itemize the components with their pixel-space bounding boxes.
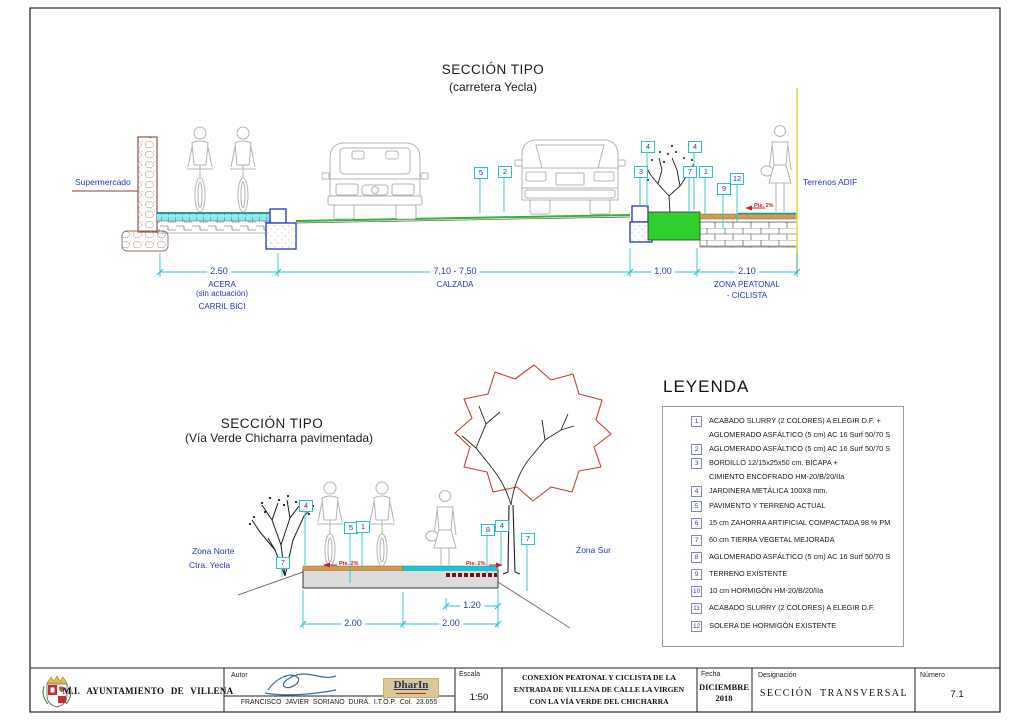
date-month: DICIEMBRE — [699, 682, 749, 692]
dim-acera-caption: (sin actuación) — [196, 289, 248, 298]
author-label: Autor — [231, 672, 248, 679]
marker-3: 3 — [634, 166, 648, 178]
bottom-section-title: SECCIÓN TIPO — [221, 416, 324, 431]
drawing-sheet: SECCIÓN TIPO (carretera Yecla) Supermerc… — [0, 0, 1024, 724]
legend-item: 3BORDILLO 12/15x25x50 cm. BICAPA +CIMIEN… — [691, 456, 844, 484]
marker-4: 4 — [299, 500, 313, 512]
via-verde-path — [303, 566, 498, 588]
legend-item: 615 cm ZAHORRA ARTIFICIAL COMPACTADA 98 … — [691, 516, 890, 534]
left-curb — [266, 209, 296, 249]
legend-item: 12SOLERA DE HORMIGÓN EXISTENTE — [691, 619, 836, 637]
legend-item-text: AGLOMERADO ASFÁLTICO (5 cm) AC 16 Surf 5… — [709, 442, 890, 456]
legend-item: 1010 cm HORMIGÓN HM-20/B/20/IIa — [691, 584, 823, 602]
dim-left: 2.00 — [341, 618, 365, 628]
slope-label: Pte. 2% — [339, 561, 359, 567]
zona-norte-label: Zona Norte — [192, 546, 235, 556]
project-title-line: ENTRADA DE VILLENA DE CALLE LA VIRGEN — [514, 685, 684, 694]
legend-item: 8AGLOMERADO ASFÁLTICO (5 cm) AC 16 Surf … — [691, 550, 890, 568]
dharin-logo-mark — [396, 693, 426, 695]
legend-item: 11ACABADO SLURRY (2 COLORES) A ELEGIR D.… — [691, 601, 875, 619]
marker-1: 1 — [699, 166, 713, 178]
supermercado-label: Supermercado — [75, 177, 131, 187]
dim-carril-bici-caption: CARRIL BICI — [199, 302, 246, 311]
left-slope — [238, 572, 303, 595]
legend-item-text: BORDILLO 12/15x25x50 cm. BICAPA + — [709, 456, 844, 470]
legend-item-number: 4 — [691, 486, 702, 497]
legend-item-text: ACABADO SLURRY (2 COLORES) A ELEGIR D.F. — [709, 601, 875, 615]
date-label: Fecha — [701, 671, 720, 678]
project-title-line: CON LA VÍA VERDE DEL CHICHARRA — [529, 697, 668, 706]
planter-box — [648, 212, 700, 240]
legend-item-number: 7 — [691, 535, 702, 546]
legend-item: 760 cm TIERRA VEGETAL MEJORADA — [691, 533, 835, 551]
legend-item-number: 1 — [691, 416, 702, 427]
legend-item-number: 10 — [691, 586, 702, 597]
dim-calzada: 7,10 - 7,50 — [430, 266, 479, 276]
dharin-logo: DharIn — [383, 678, 439, 698]
legend-item: 1ACABADO SLURRY (2 COLORES) A ELEGIR D.F… — [691, 414, 890, 442]
designation-value: SECCIÓN TRANSVERSAL — [760, 688, 908, 699]
top-section-subtitle: (carretera Yecla) — [449, 80, 537, 94]
cyclist-figure — [369, 482, 395, 566]
legend-item-number: 11 — [691, 603, 702, 614]
author-signature — [265, 674, 336, 695]
right-slope — [498, 582, 570, 628]
car-front-view — [322, 143, 428, 219]
legend-item-text: TERRENO EXISTENTE — [709, 567, 787, 581]
marker-5: 5 — [474, 167, 488, 179]
legend-item-number: 6 — [691, 518, 702, 529]
dim-ciclista-caption: - CICLISTA — [727, 291, 767, 300]
marker-7: 7 — [521, 533, 535, 545]
legend-item: 9TERRENO EXISTENTE — [691, 567, 787, 585]
dharin-logo-text: DharIn — [384, 679, 438, 692]
number-label: Número — [920, 672, 945, 679]
cyclist-figure — [317, 482, 343, 566]
cyclist-figure — [187, 127, 213, 212]
pedestrian-zone-paving — [700, 214, 797, 248]
supermarket-wall — [122, 137, 168, 251]
legend-item-text: AGLOMERADO ASFÁLTICO (5 cm) AC 16 Surf 5… — [709, 428, 890, 442]
dim-strip: 1.20 — [460, 600, 484, 610]
slope-label: Pte. 2% — [754, 203, 774, 209]
bottom-section-subtitle: (Vía Verde Chicharra pavimentada) — [185, 431, 373, 445]
number-value: 7.1 — [950, 689, 963, 700]
legend-item-number: 9 — [691, 569, 702, 580]
marker-4: 4 — [495, 520, 509, 532]
dim-acera: 2.50 — [207, 266, 231, 276]
dim-acera-caption: ACERA — [208, 280, 236, 289]
scale-label: Escala — [459, 671, 480, 678]
legend-item-text: ACABADO SLURRY (2 COLORES) A ELEGIR D.F.… — [709, 414, 890, 428]
legend-item-text: 60 cm TIERRA VEGETAL MEJORADA — [709, 533, 835, 547]
marker-2: 2 — [498, 166, 512, 178]
date-year: 2018 — [716, 693, 733, 703]
marker-9: 9 — [717, 183, 731, 195]
dim-right: 2.00 — [439, 618, 463, 628]
legend-item-number: 5 — [691, 501, 702, 512]
municipality-name: M.I. AYUNTAMIENTO DE VILLENA — [63, 686, 234, 696]
terrenos-adif-label: Terrenos ADIF — [803, 177, 857, 187]
legend-item-text: 15 cm ZAHORRA ARTIFICIAL COMPACTADA 98 %… — [709, 516, 890, 530]
marker-8: 8 — [481, 524, 495, 536]
legend-item-text: 10 cm HORMIGÓN HM-20/B/20/IIa — [709, 584, 823, 598]
marker-1: 1 — [356, 521, 370, 533]
car-rear-view — [515, 140, 625, 214]
slope-label: Pte. 2% — [466, 561, 486, 567]
pedestrian-figure — [761, 126, 791, 213]
legend-item-text: JARDINERA METÁLICA 100X8 mm. — [709, 484, 827, 498]
sidewalk-bike-lane — [157, 213, 270, 233]
marker-7: 7 — [276, 557, 290, 569]
ctra-yecla-label: Ctra. Yecla — [189, 560, 230, 570]
bottom-section-drawing — [238, 365, 611, 628]
legend-item-text: AGLOMERADO ASFÁLTICO (5 cm) AC 16 Surf 5… — [709, 550, 890, 564]
dim-zona-peatonal: 2.10 — [735, 266, 759, 276]
zona-sur-label: Zona Sur — [576, 545, 611, 555]
legend-item-number: 3 — [691, 458, 702, 469]
legend-item-number: 8 — [691, 552, 702, 563]
legend-item-number: 12 — [691, 621, 702, 632]
legend-item-text: SOLERA DE HORMIGÓN EXISTENTE — [709, 619, 836, 633]
dim-jardinera: 1.00 — [651, 266, 675, 276]
dim-calzada-caption: CALZADA — [437, 280, 474, 289]
marker-12: 12 — [730, 173, 744, 185]
scale-value: 1:50 — [470, 692, 489, 703]
dim-zona-peatonal-caption: ZONA PEATONAL — [714, 280, 780, 289]
top-section-title: SECCIÓN TIPO — [442, 62, 545, 77]
cyclist-figure — [230, 127, 256, 212]
pedestrian-figure — [426, 491, 456, 567]
author-name: FRANCISCO JAVIER SORIANO DURÁ. I.T.O.P. … — [241, 699, 437, 706]
designation-label: Designación — [758, 672, 797, 679]
legend-item-number: 2 — [691, 444, 702, 455]
legend-item-text: PAVIMENTO Y TERRENO ACTUAL — [709, 499, 825, 513]
project-title-line: CONEXIÓN PEATONAL Y CICLISTA DE LA — [522, 673, 676, 682]
legend-item-text: CIMIENTO ENCOFRADO HM-20/B/20/IIa — [709, 470, 844, 484]
legend-item: 5PAVIMENTO Y TERRENO ACTUAL — [691, 499, 825, 517]
marker-4: 4 — [688, 141, 702, 153]
legend-title: LEYENDA — [663, 377, 749, 397]
marker-4: 4 — [641, 141, 655, 153]
top-section-drawing — [72, 88, 800, 277]
marker-7: 7 — [683, 166, 697, 178]
